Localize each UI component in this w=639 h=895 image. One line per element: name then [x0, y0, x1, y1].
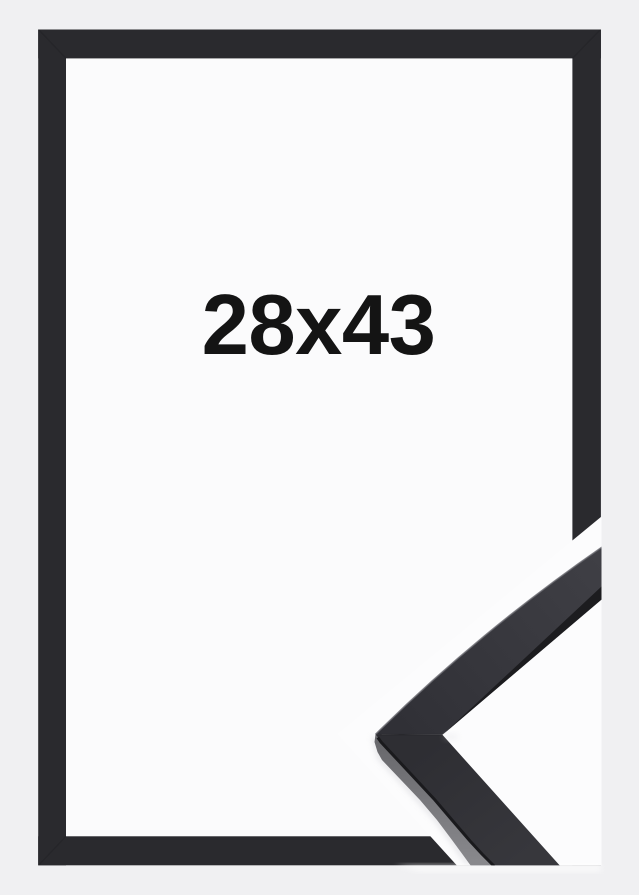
svg-text:28x43: 28x43: [202, 278, 436, 373]
